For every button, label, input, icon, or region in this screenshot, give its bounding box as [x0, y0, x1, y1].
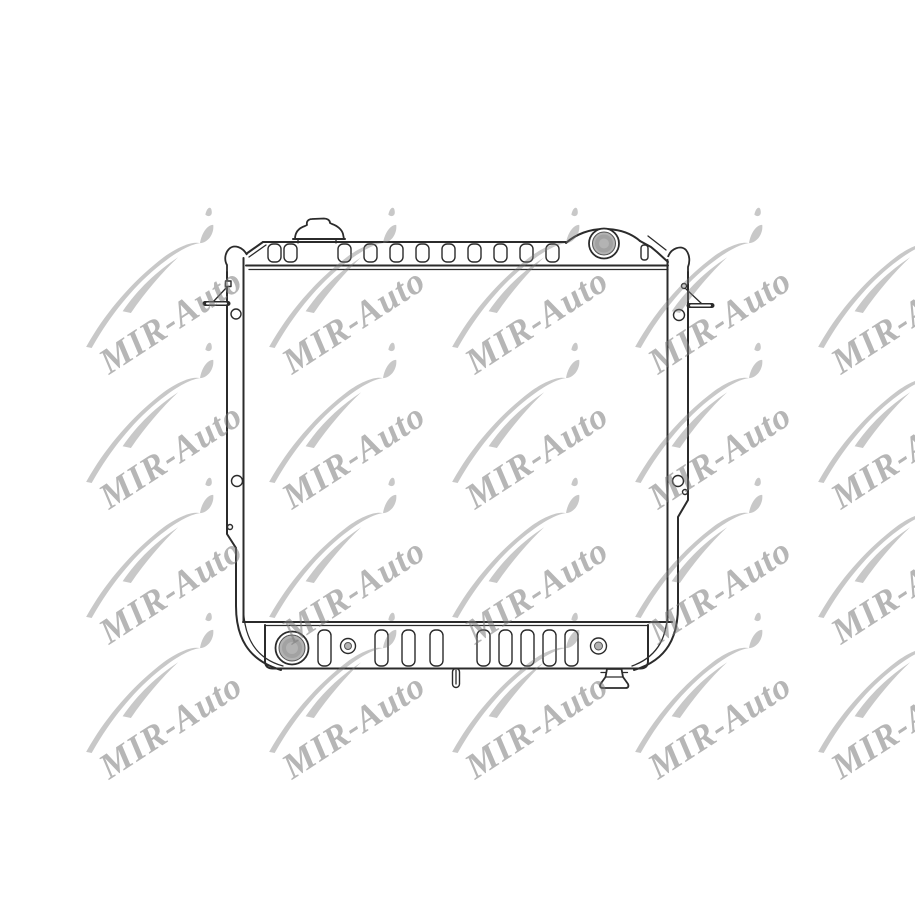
watermark-instance [59, 342, 261, 519]
watermark-instance [425, 477, 627, 654]
filler-cap [293, 219, 345, 244]
watermark-instance [59, 207, 261, 384]
watermark-layer [59, 207, 915, 789]
boss-left [341, 639, 356, 654]
bottom-header-slots [318, 630, 578, 666]
top-tank-header [246, 219, 668, 265]
watermark-instance [425, 342, 627, 519]
watermark-instance [242, 477, 444, 654]
radiator-line-drawing: MIR-Auto [0, 0, 915, 915]
watermark-instance [608, 612, 810, 789]
watermark-instance [791, 207, 915, 384]
watermark-instance [242, 342, 444, 519]
boss-right [591, 638, 607, 654]
radiator-product-image: MIR-Auto [0, 0, 915, 915]
watermark-instance [608, 477, 810, 654]
watermark-instance [608, 342, 810, 519]
watermark-instance [59, 612, 261, 789]
mounting-bracket-right [668, 248, 689, 272]
watermark-instance [608, 207, 810, 384]
watermark-instance [59, 477, 261, 654]
drain-tube [453, 669, 460, 688]
